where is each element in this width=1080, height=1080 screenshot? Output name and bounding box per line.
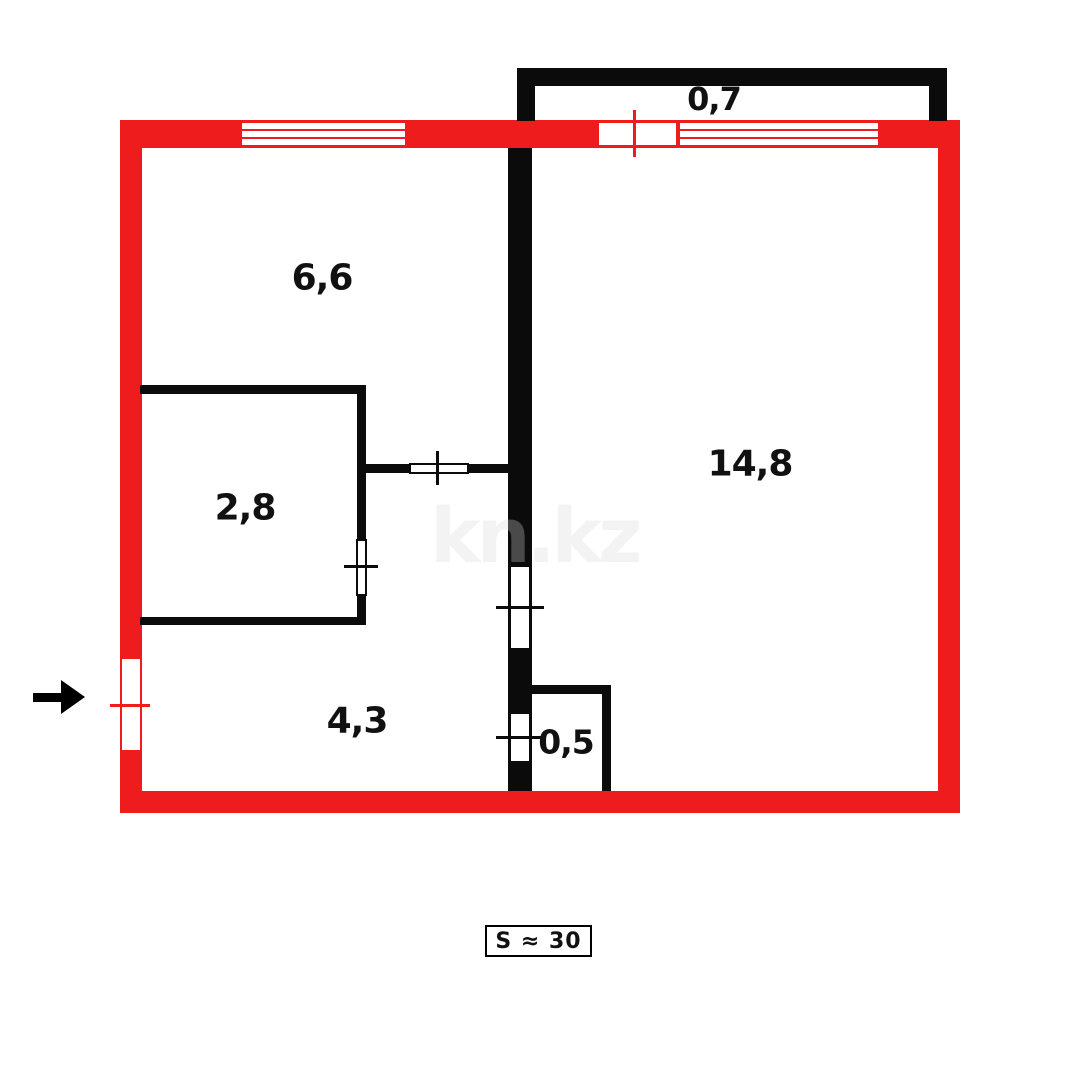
- watermark-text: kn.kz: [430, 498, 638, 574]
- closet-wall-top: [530, 685, 611, 694]
- entrance-arrow-shaft: [33, 693, 63, 702]
- living-room-door-tick: [496, 606, 544, 609]
- balcony-wall-left: [517, 68, 535, 121]
- room-label-living-room: 14,8: [708, 444, 793, 485]
- balcony-door-tick: [633, 110, 636, 157]
- closet-door-tick: [496, 736, 544, 739]
- room-label-bathroom: 2,8: [215, 488, 276, 529]
- entrance-arrow-icon: [61, 680, 85, 714]
- kitchen-door-tick: [436, 451, 439, 485]
- bathroom-wall-top: [140, 385, 366, 394]
- outer-wall-right: [938, 120, 960, 813]
- closet-wall-right: [602, 685, 611, 791]
- balcony-door: [597, 121, 678, 147]
- window-kitchen: [240, 121, 407, 147]
- entrance-door-tick: [110, 704, 150, 707]
- watermark-wall-overlap: kn.kz: [508, 498, 532, 564]
- watermark-dark-text: kn.kz: [508, 498, 532, 564]
- room-label-closet: 0,5: [538, 723, 593, 762]
- total-area-box: S ≈ 30: [485, 925, 592, 957]
- balcony-wall-right: [929, 68, 947, 121]
- room-label-balcony: 0,7: [687, 80, 741, 118]
- room-label-kitchen: 6,6: [292, 258, 353, 299]
- kitchen-door: [409, 463, 469, 474]
- room-label-hallway: 4,3: [327, 701, 388, 742]
- bathroom-door-tick: [344, 565, 378, 568]
- floor-plan: kn.kz kn.kz 0,7 6,6 14,8 2,8 4: [0, 0, 1080, 1080]
- total-area-label: S ≈ 30: [495, 929, 581, 954]
- central-wall-middle: [508, 649, 532, 713]
- bathroom-wall-bottom: [140, 617, 366, 625]
- outer-wall-bottom: [120, 791, 960, 813]
- central-wall-lower: [508, 761, 532, 791]
- window-living-room: [678, 121, 880, 147]
